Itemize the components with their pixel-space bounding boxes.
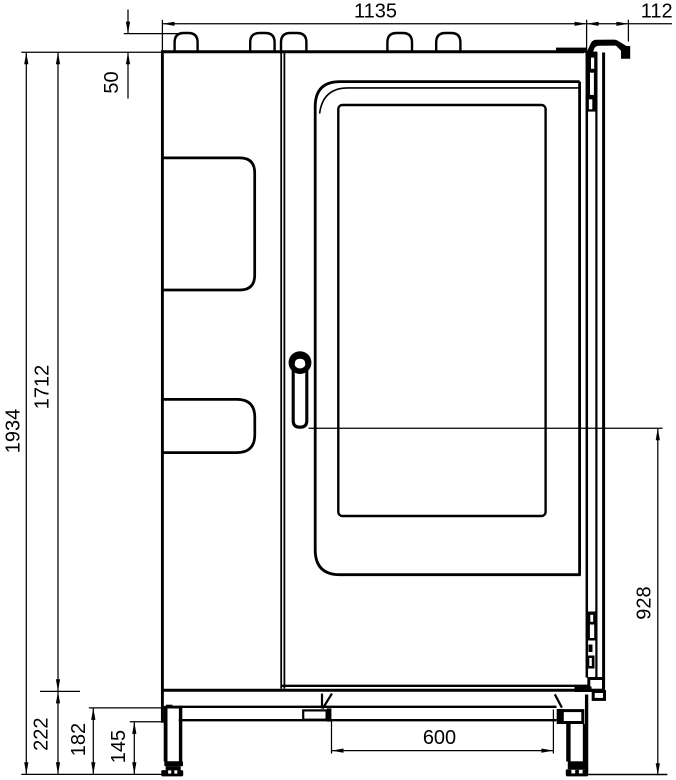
svg-text:222: 222	[31, 718, 53, 751]
svg-text:182: 182	[68, 723, 90, 756]
svg-text:112: 112	[641, 1, 673, 23]
svg-text:928: 928	[633, 586, 655, 619]
svg-text:1135: 1135	[354, 1, 397, 23]
svg-text:1712: 1712	[32, 365, 54, 410]
svg-text:50: 50	[101, 71, 123, 93]
svg-text:600: 600	[423, 727, 456, 749]
svg-text:1934: 1934	[2, 409, 24, 454]
svg-text:145: 145	[108, 730, 130, 763]
